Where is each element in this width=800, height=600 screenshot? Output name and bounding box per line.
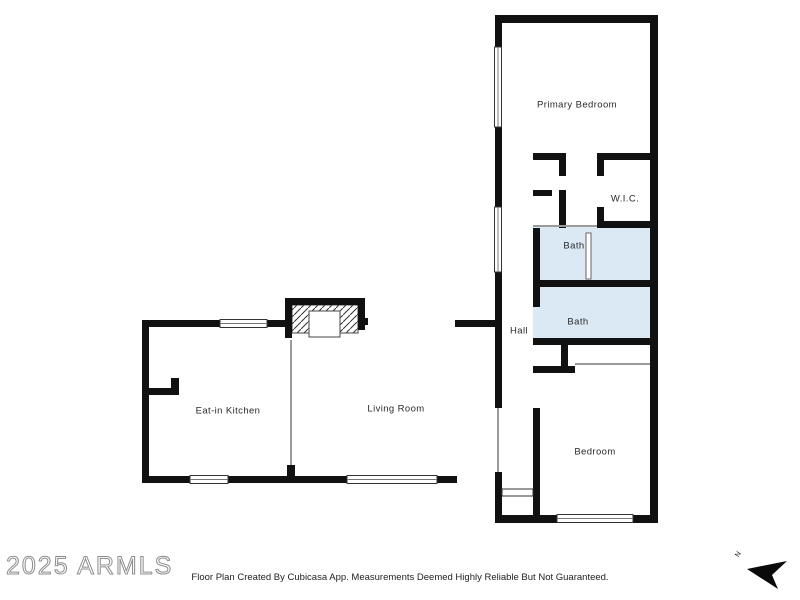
room-label-wic: W.I.C. [611,194,639,205]
bath-door-leaf [586,233,591,279]
left-wing-walls [142,318,502,483]
room-label-primary-bedroom: Primary Bedroom [537,100,617,111]
room-label-bath-upper: Bath [563,241,584,252]
armls-watermark: 2025 ARMLS [6,552,173,581]
bath-lower-floor [533,287,650,340]
floorplan-page: Primary Bedroom W.I.C. Bath Bath Hall Be… [0,0,800,600]
room-label-hall: Hall [510,326,528,337]
room-label-bath-lower: Bath [567,317,588,328]
north-arrow-icon [747,561,787,589]
disclaimer-text: Floor Plan Created By Cubicasa App. Meas… [191,572,608,583]
room-label-living-room: Living Room [367,404,424,415]
room-label-eat-in-kitchen: Eat-in Kitchen [196,406,261,417]
floorplan-drawing [0,0,800,600]
fireplace-icon [285,298,365,338]
left-wing-windows [190,320,437,484]
room-label-bedroom: Bedroom [574,447,615,458]
